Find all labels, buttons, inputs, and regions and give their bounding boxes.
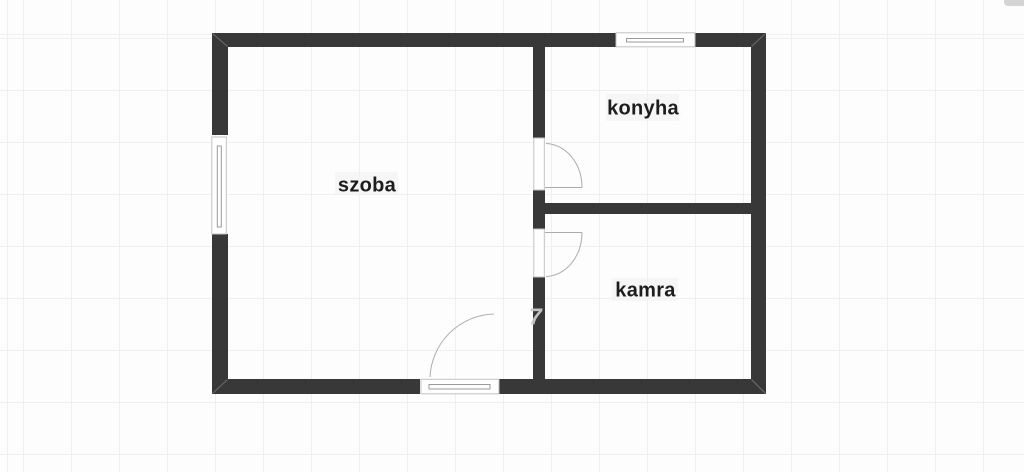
wall-interior-vertical-upper xyxy=(533,47,545,138)
room-labels: szoba konyha kamra xyxy=(335,94,679,302)
room-area-szoba xyxy=(228,47,533,379)
wall-interior-vertical-middle xyxy=(533,190,545,229)
konyha-door-swing-arc xyxy=(546,144,582,188)
kamra-door-icon xyxy=(534,229,582,277)
top-window-icon xyxy=(616,33,695,47)
room-area-konyha xyxy=(545,47,751,203)
entrance-door-icon xyxy=(421,314,499,394)
wall-right xyxy=(751,33,766,394)
room-label-konyha: konyha xyxy=(607,98,679,120)
room-label-kamra: kamra xyxy=(615,280,676,302)
floor-plan-viewport: szoba konyha kamra 7 xyxy=(0,0,1024,472)
floor-plan-canvas: szoba konyha kamra 7 xyxy=(0,0,1024,472)
cropped-corner-button[interactable] xyxy=(1004,0,1024,6)
konyha-door-icon xyxy=(534,138,582,190)
wall-interior-horizontal xyxy=(545,203,751,214)
room-label-szoba: szoba xyxy=(338,175,397,197)
left-window-icon xyxy=(212,137,227,234)
entrance-door-swing-arc xyxy=(430,314,494,377)
wall-top-left-segment xyxy=(212,33,616,47)
watermark-digit: 7 xyxy=(529,304,543,330)
kamra-door-swing-arc xyxy=(546,233,582,277)
wall-left-upper-segment xyxy=(212,33,228,135)
wall-bottom-right-segment xyxy=(498,379,766,394)
doors xyxy=(421,138,582,394)
wall-bottom-left-segment xyxy=(212,379,420,394)
wall-left-lower-segment xyxy=(212,234,228,394)
